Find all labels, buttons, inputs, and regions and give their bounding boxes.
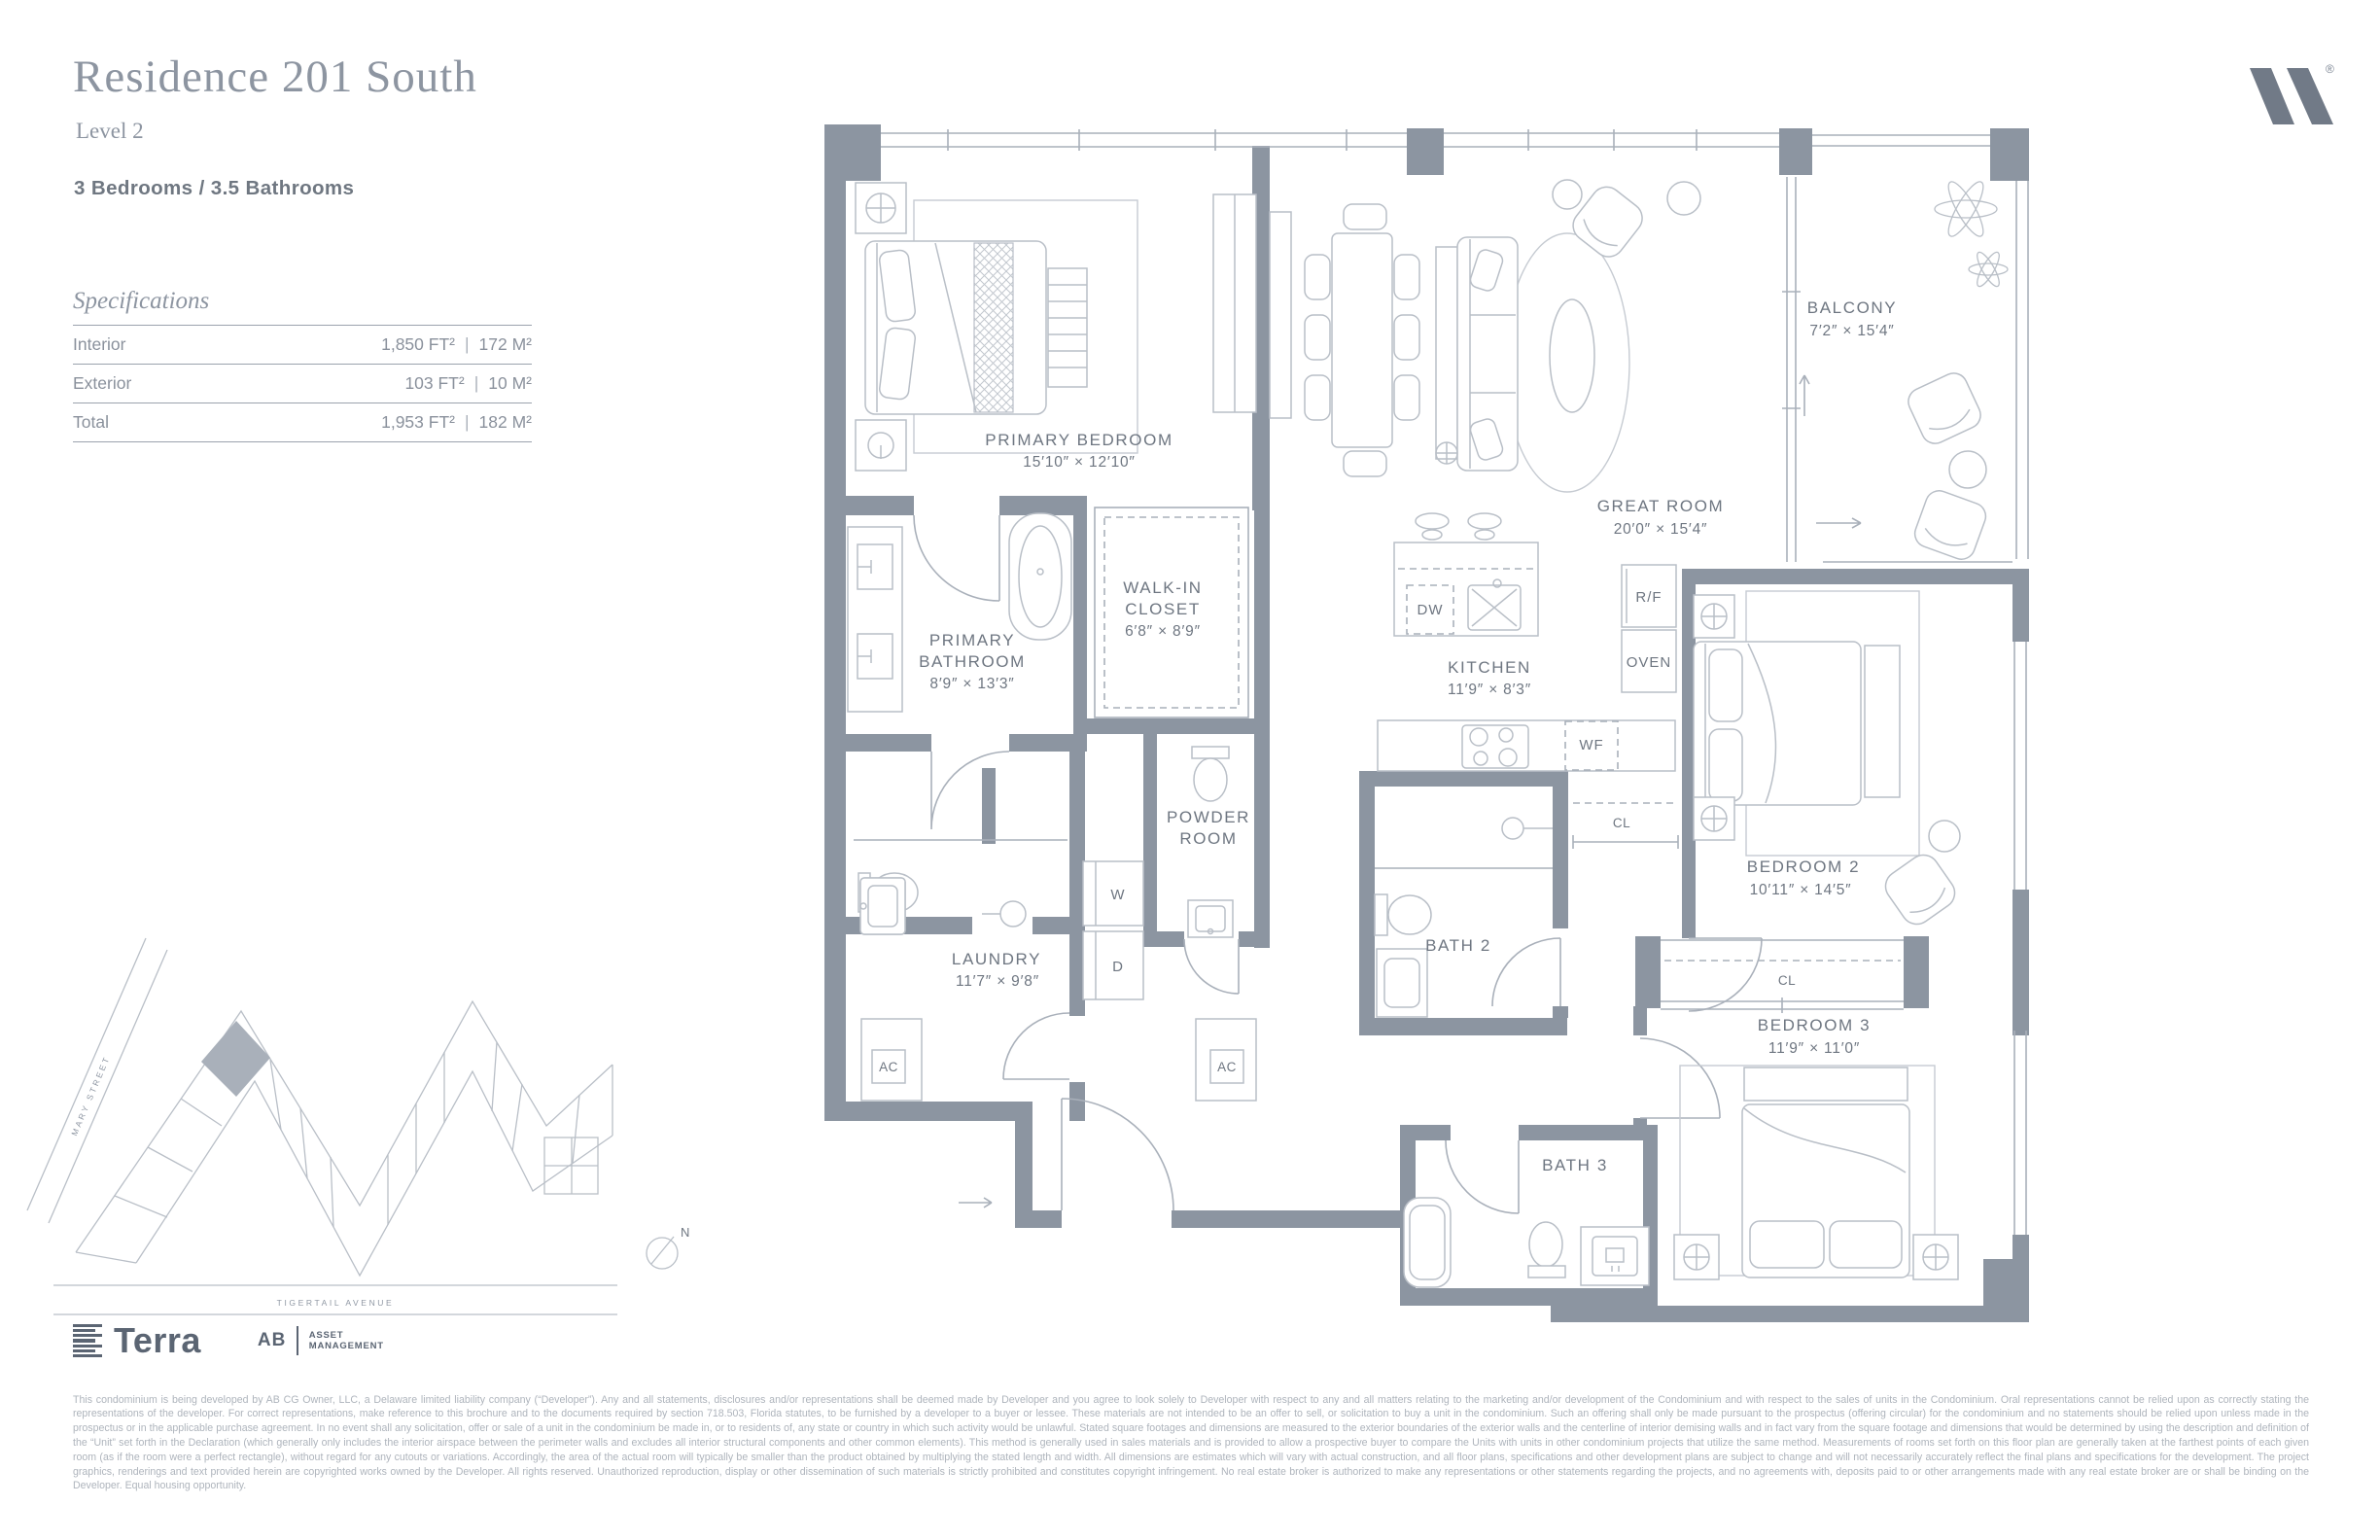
- asset-line2: MANAGEMENT: [309, 1341, 384, 1352]
- spec-m: 182 M²: [479, 412, 532, 432]
- spec-ft: 103 FT²: [404, 373, 464, 393]
- spec-label: Total: [73, 403, 201, 442]
- room-dims-laundry: 11′7″ × 9′8″: [956, 973, 1039, 990]
- room-label-laundry: LAUNDRY: [952, 950, 1041, 968]
- page-title: Residence 201 South: [73, 51, 477, 103]
- room-label-primary-bathroom-1: PRIMARY: [929, 631, 1015, 649]
- room-label-kitchen: KITCHEN: [1448, 658, 1531, 677]
- room-dims-kitchen: 11′9″ × 8′3″: [1448, 682, 1531, 698]
- registered-mark: ®: [2326, 62, 2334, 76]
- legal-disclaimer: This condominium is being developed by A…: [73, 1393, 2309, 1494]
- spec-label: Exterior: [73, 365, 201, 403]
- brochure-page: Residence 201 South Level 2 3 Bedrooms /…: [0, 0, 2380, 1540]
- closet-label-cl-bath2: CL: [1613, 816, 1630, 830]
- spec-ft: 1,953 FT²: [381, 412, 455, 432]
- spec-ft: 1,850 FT²: [381, 334, 455, 354]
- room-label-primary-bedroom: PRIMARY BEDROOM: [985, 431, 1172, 449]
- room-dims-walk-in-closet: 6′8″ × 8′9″: [1125, 623, 1201, 640]
- room-dims-balcony: 7′2″ × 15′4″: [1809, 323, 1894, 339]
- compass-n-label: N: [681, 1225, 689, 1240]
- spec-divider: |: [474, 373, 479, 393]
- appliance-label-ac-right: AC: [1217, 1060, 1237, 1074]
- room-label-walk-in-closet-1: WALK-IN: [1123, 578, 1202, 597]
- table-row: Total 1,953 FT²|182 M²: [73, 403, 532, 442]
- room-label-primary-bathroom-2: BATHROOM: [919, 652, 1026, 671]
- appliance-label-dryer: D: [1112, 959, 1124, 975]
- plant-icon: [1935, 178, 2008, 290]
- ab-asset-management-logo: AB ASSET MANAGEMENT: [258, 1326, 384, 1355]
- compass-icon: N: [647, 1225, 689, 1269]
- room-label-bedroom-3: BEDROOM 3: [1758, 1016, 1871, 1034]
- entry-arrow-icon: [959, 1198, 992, 1207]
- appliance-label-dw: DW: [1417, 602, 1444, 618]
- room-label-bath-3: BATH 3: [1542, 1156, 1608, 1174]
- spec-divider: |: [465, 334, 470, 354]
- spec-divider: |: [465, 412, 470, 432]
- closet-label-cl-bedroom3: CL: [1778, 973, 1796, 988]
- appliance-label-ac-left: AC: [879, 1060, 898, 1074]
- kitchen-fixtures: [1378, 513, 1676, 771]
- asset-line1: ASSET: [309, 1330, 384, 1342]
- room-label-bedroom-2: BEDROOM 2: [1747, 857, 1860, 876]
- room-dims-primary-bathroom: 8′9″ × 13′3″: [929, 676, 1014, 692]
- balcony-furniture: [1800, 178, 2008, 563]
- spec-label: Interior: [73, 326, 201, 365]
- room-label-powder-room-2: ROOM: [1179, 829, 1237, 848]
- bed-bath-config: 3 Bedrooms / 3.5 Bathrooms: [74, 177, 354, 200]
- room-label-great-room: GREAT ROOM: [1597, 497, 1725, 515]
- laundry-fixtures: [860, 861, 1256, 1101]
- logo-divider: [297, 1326, 297, 1355]
- w-brand-logo: ®: [2244, 64, 2341, 137]
- room-dims-great-room: 20′0″ × 15′4″: [1614, 521, 1708, 538]
- great-room-furniture: [1270, 180, 1700, 492]
- appliance-label-wf: WF: [1579, 737, 1603, 753]
- floor-plan: PRIMARY BEDROOM 15′10″ × 12′10″ GREAT RO…: [817, 78, 2032, 1342]
- ab-logo-text: AB: [258, 1330, 286, 1351]
- site-map: MARY STREET TIGERTAIL AVENUE N: [0, 914, 719, 1332]
- room-dims-bedroom-2: 10′11″ × 14′5″: [1750, 882, 1852, 898]
- terra-logo-icon: [73, 1324, 102, 1357]
- site-plan-outline: [27, 938, 617, 1314]
- primary-bedroom-furniture: [856, 183, 1256, 471]
- terra-logo-text: Terra: [114, 1320, 201, 1361]
- room-label-bath-2: BATH 2: [1425, 936, 1491, 955]
- appliance-label-rf: R/F: [1635, 589, 1662, 606]
- table-row: Interior 1,850 FT²|172 M²: [73, 326, 532, 365]
- room-label-walk-in-closet-2: CLOSET: [1125, 600, 1201, 618]
- bedroom2-furniture: [1694, 591, 1961, 930]
- bath2-fixtures: [1375, 803, 1678, 1017]
- level-subtitle: Level 2: [76, 119, 144, 144]
- room-label-balcony: BALCONY: [1807, 298, 1897, 317]
- table-row: Exterior 103 FT²|10 M²: [73, 365, 532, 403]
- room-dims-primary-bedroom: 15′10″ × 12′10″: [1023, 454, 1135, 471]
- bath3-fixtures: [1404, 1198, 1649, 1287]
- room-label-powder-room-1: POWDER: [1167, 808, 1250, 826]
- appliance-label-oven: OVEN: [1627, 654, 1672, 671]
- appliance-label-washer: W: [1110, 887, 1125, 903]
- room-dims-bedroom-3: 11′9″ × 11′0″: [1768, 1040, 1860, 1057]
- highlighted-unit: [201, 1021, 270, 1097]
- specs-heading: Specifications: [73, 288, 532, 326]
- spec-m: 10 M²: [488, 373, 532, 393]
- spec-m: 172 M²: [479, 334, 532, 354]
- street-label-tigertail: TIGERTAIL AVENUE: [277, 1298, 395, 1308]
- specifications-table: Specifications Interior 1,850 FT²|172 M²…: [73, 288, 532, 442]
- developer-logos: Terra AB ASSET MANAGEMENT: [73, 1320, 384, 1361]
